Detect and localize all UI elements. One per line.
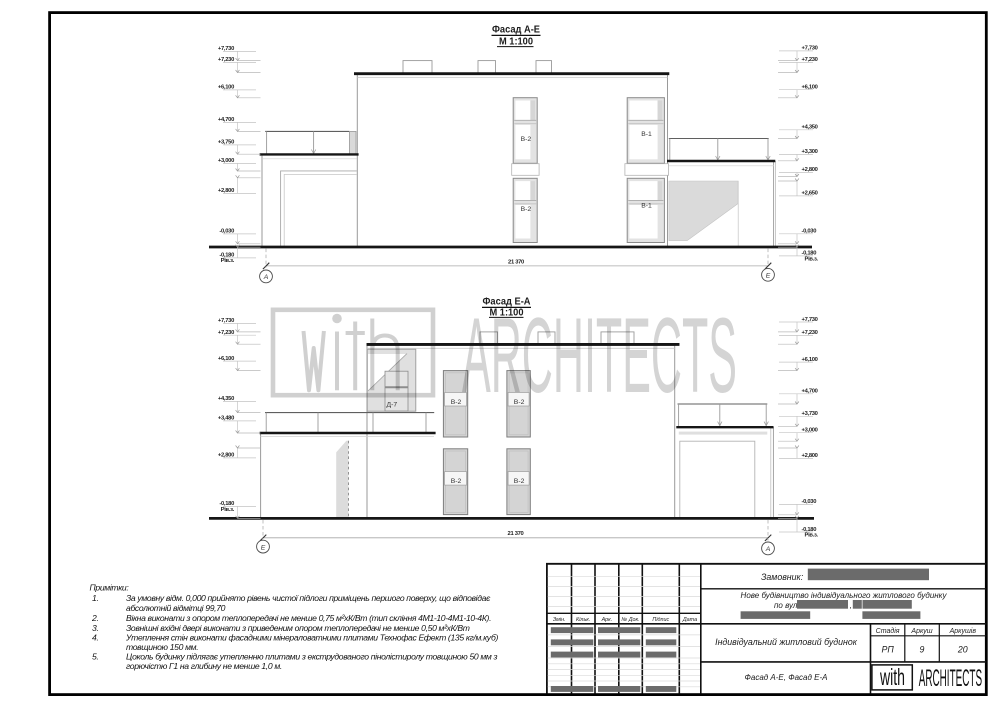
svg-text:Рів.з.: Рів.з. bbox=[221, 507, 235, 513]
svg-text:Примітки:: Примітки: bbox=[90, 583, 130, 593]
svg-text:Аркушів: Аркушів bbox=[949, 627, 977, 635]
svg-text:ARCHITECTS: ARCHITECTS bbox=[462, 295, 737, 415]
svg-text:РП: РП bbox=[881, 644, 894, 654]
svg-text:Змін.: Змін. bbox=[553, 617, 566, 623]
svg-text:Утеплення стін виконати фасадн: Утеплення стін виконати фасадними мінера… bbox=[125, 633, 498, 643]
svg-text:Замовник:: Замовник: bbox=[761, 572, 804, 582]
svg-text:В-2: В-2 bbox=[521, 136, 532, 143]
svg-text:Дата: Дата bbox=[682, 617, 697, 623]
svg-text:Стадія: Стадія bbox=[876, 627, 900, 635]
svg-text:3.: 3. bbox=[92, 623, 99, 633]
svg-text:Арк.: Арк. bbox=[601, 617, 613, 623]
svg-text:горючістю Г1 на глибину не мен: горючістю Г1 на глибину не менше 1,0 м. bbox=[126, 661, 282, 671]
svg-text:21 370: 21 370 bbox=[508, 531, 524, 537]
svg-text:В-2: В-2 bbox=[514, 478, 525, 485]
svg-text:with: with bbox=[879, 664, 905, 690]
svg-text:В-2: В-2 bbox=[451, 399, 462, 406]
svg-text:Фасад А-Е: Фасад А-Е bbox=[492, 24, 540, 36]
svg-text:Аркуш: Аркуш bbox=[910, 628, 932, 635]
svg-text:Підпис: Підпис bbox=[652, 617, 669, 623]
svg-text:ARCHITECTS: ARCHITECTS bbox=[919, 665, 982, 692]
svg-text:Кільк.: Кільк. bbox=[576, 617, 590, 623]
svg-text:2.: 2. bbox=[91, 613, 99, 623]
svg-text:Індивідуальний житловий будино: Індивідуальний житловий будинок bbox=[715, 637, 858, 647]
svg-text:Рів.з.: Рів.з. bbox=[805, 533, 819, 539]
svg-text:Нове будівництво індивідуально: Нове будівництво індивідуального житлово… bbox=[741, 591, 948, 600]
svg-text:по вул.: по вул. bbox=[774, 601, 800, 610]
svg-text:,: , bbox=[850, 601, 852, 610]
svg-text:За умовну відм. 0,000 прийнято: За умовну відм. 0,000 прийнято рівень чи… bbox=[126, 593, 491, 603]
svg-text:Фасад А-Е, Фасад Е-А: Фасад А-Е, Фасад Е-А bbox=[745, 673, 828, 682]
svg-text:Рів.з.: Рів.з. bbox=[805, 257, 819, 263]
svg-text:В-2: В-2 bbox=[451, 478, 462, 485]
svg-text:Вікна виконати з опором теплоп: Вікна виконати з опором теплопередачі не… bbox=[126, 613, 491, 623]
svg-text:5.: 5. bbox=[92, 652, 99, 662]
svg-text:9: 9 bbox=[920, 644, 925, 654]
svg-text:А: А bbox=[765, 546, 771, 553]
svg-text:товщиною 150 мм.: товщиною 150 мм. bbox=[126, 642, 198, 652]
svg-text:А: А bbox=[263, 274, 269, 281]
svg-text:№ Док.: № Док. bbox=[621, 617, 639, 623]
svg-text:В-1: В-1 bbox=[641, 203, 652, 210]
svg-text:20: 20 bbox=[957, 644, 968, 654]
svg-text:Д-7: Д-7 bbox=[386, 402, 397, 409]
svg-text:Е: Е bbox=[261, 544, 266, 551]
svg-text:1.: 1. bbox=[92, 593, 99, 603]
svg-text:21 370: 21 370 bbox=[508, 259, 524, 265]
svg-text:Е: Е bbox=[766, 273, 771, 280]
svg-text:В-2: В-2 bbox=[521, 206, 532, 213]
svg-text:4.: 4. bbox=[92, 633, 99, 643]
svg-text:Цоколь будинку підлягає утепле: Цоколь будинку підлягає утепленню плитам… bbox=[126, 652, 498, 662]
svg-text:абсолютній відмітці 99,70: абсолютній відмітці 99,70 bbox=[126, 603, 226, 613]
svg-text:М 1:100: М 1:100 bbox=[499, 35, 533, 47]
svg-text:Зовнішні вхідні двері виконати: Зовнішні вхідні двері виконати з приведе… bbox=[126, 623, 470, 633]
svg-text:Рів.з.: Рів.з. bbox=[221, 258, 235, 264]
svg-text:В-1: В-1 bbox=[641, 131, 652, 138]
